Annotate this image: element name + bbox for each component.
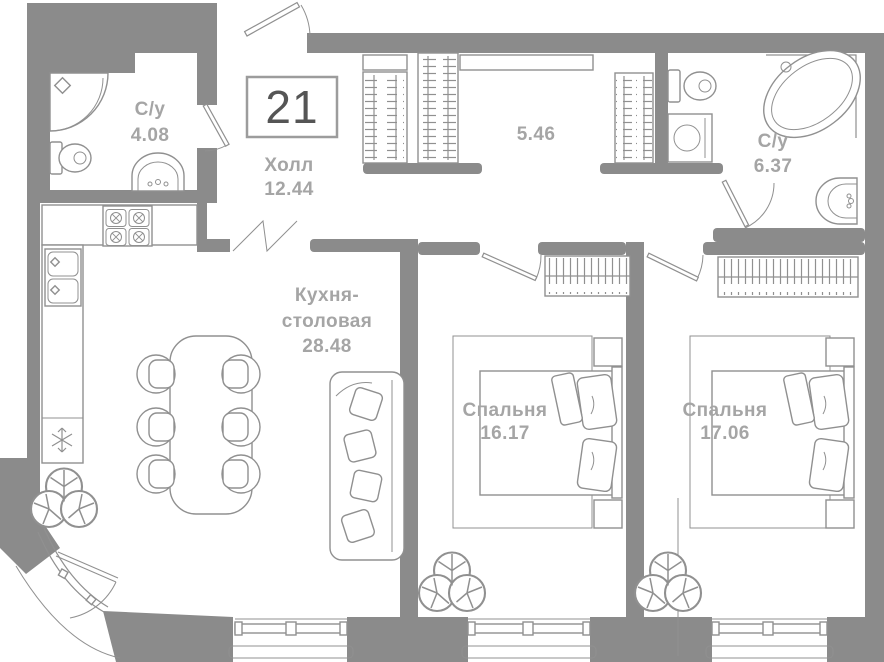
bedroom1-label: Спальня	[463, 400, 548, 421]
headboard	[612, 367, 622, 498]
plant	[635, 553, 701, 612]
wall-right	[865, 33, 884, 662]
toilet	[50, 142, 91, 174]
nightstand	[594, 500, 622, 528]
bathroom1-door-leaf	[203, 104, 229, 146]
hall-label: Холл	[264, 155, 313, 176]
pillow	[809, 438, 850, 492]
bay-mullion	[86, 595, 96, 605]
shelf	[460, 55, 593, 70]
bay-pier-bottom	[103, 611, 233, 662]
corridor-area: 5.46	[517, 124, 556, 145]
bedroom2-label: Спальня	[683, 400, 768, 421]
bedroom2-window	[706, 619, 833, 658]
balcony-railing	[462, 646, 596, 658]
bathroom1-door	[203, 104, 229, 151]
sink	[132, 153, 184, 191]
chair	[137, 455, 175, 493]
wall-segment	[197, 203, 207, 252]
wardrobes-corridor	[363, 53, 653, 163]
wall-segment	[27, 53, 40, 458]
wardrobe-rack	[545, 256, 630, 296]
plant	[419, 553, 485, 612]
kitchen-opening	[233, 221, 297, 251]
balcony-door	[56, 552, 118, 618]
sink	[816, 178, 857, 224]
hall-area: 12.44	[264, 179, 314, 200]
wall-segment	[418, 242, 480, 255]
floor-plan-canvas: 21 С/у 4.08 Холл 12.44 5.46 С/у 6.37 Кух…	[0, 0, 884, 662]
pillow	[577, 438, 618, 492]
kitchen-label-1: Кухня-	[295, 285, 359, 306]
bathroom2-door	[722, 180, 774, 228]
wall-segment	[40, 53, 50, 203]
bedroom1-window	[462, 619, 596, 658]
wall-segment	[600, 163, 723, 174]
chair	[222, 408, 260, 446]
chair	[222, 455, 260, 493]
wall-segment	[27, 3, 217, 53]
bathroom2-label: С/у	[758, 131, 789, 152]
wall-segment	[307, 33, 884, 53]
entrance-door-leaf	[245, 3, 300, 36]
pillow	[809, 374, 850, 430]
plant	[31, 469, 97, 528]
bathroom1-area: 4.08	[131, 125, 170, 146]
sofa	[330, 372, 404, 560]
bedroom2-door-leaf	[647, 253, 698, 281]
kitchen-window	[229, 619, 353, 658]
nightstand	[826, 500, 854, 528]
bedroom2-area: 17.06	[700, 423, 750, 444]
bathroom2-door-leaf	[722, 180, 748, 226]
wall-segment	[655, 53, 668, 163]
window-pier	[590, 617, 712, 662]
bedroom2-furniture	[635, 257, 858, 656]
wall-segment	[197, 148, 217, 203]
wall-segment	[363, 163, 482, 174]
stove	[103, 206, 152, 246]
nightstand	[594, 338, 622, 366]
washing-machine	[668, 114, 712, 162]
wardrobe-rack	[418, 53, 458, 163]
bedroom1-door-leaf	[482, 253, 537, 280]
balcony-railing	[229, 646, 353, 658]
wall-segment	[207, 239, 230, 252]
wall-segment	[40, 190, 217, 203]
nightstand	[826, 338, 854, 366]
wall-segment	[538, 242, 626, 255]
kitchen-area: 28.48	[302, 336, 352, 357]
kitchen-label-2: столовая	[282, 311, 372, 332]
window-pier	[347, 617, 468, 662]
wall-segment	[40, 53, 135, 73]
bedroom1-door	[482, 253, 541, 280]
wall-segment	[703, 242, 865, 255]
bedroom2-door	[647, 253, 703, 281]
wardrobe-rack	[615, 73, 653, 163]
shelf	[363, 55, 407, 70]
unit-number: 21	[265, 81, 318, 133]
wardrobe-rack	[363, 72, 407, 163]
chair	[137, 408, 175, 446]
chair	[137, 355, 175, 393]
wall-segment	[197, 53, 217, 105]
wall-segment	[713, 228, 865, 242]
pillow	[577, 374, 618, 430]
kitchen-furniture	[31, 205, 404, 560]
unit-number-plate: 21	[247, 77, 337, 137]
bedroom1-area: 16.17	[480, 423, 530, 444]
entrance-door	[245, 3, 310, 36]
floor-plan: 21 С/у 4.08 Холл 12.44 5.46 С/у 6.37 Кух…	[0, 0, 884, 662]
toilet	[668, 70, 716, 102]
balcony-railing	[706, 646, 833, 658]
headboard	[844, 367, 854, 498]
double-sink	[45, 249, 81, 306]
bathroom2-area: 6.37	[754, 156, 793, 177]
wall-bedroom1-bedroom2	[626, 242, 644, 617]
bathroom1-label: С/у	[135, 99, 166, 120]
wardrobe-rack	[718, 257, 858, 297]
chair	[222, 355, 260, 393]
